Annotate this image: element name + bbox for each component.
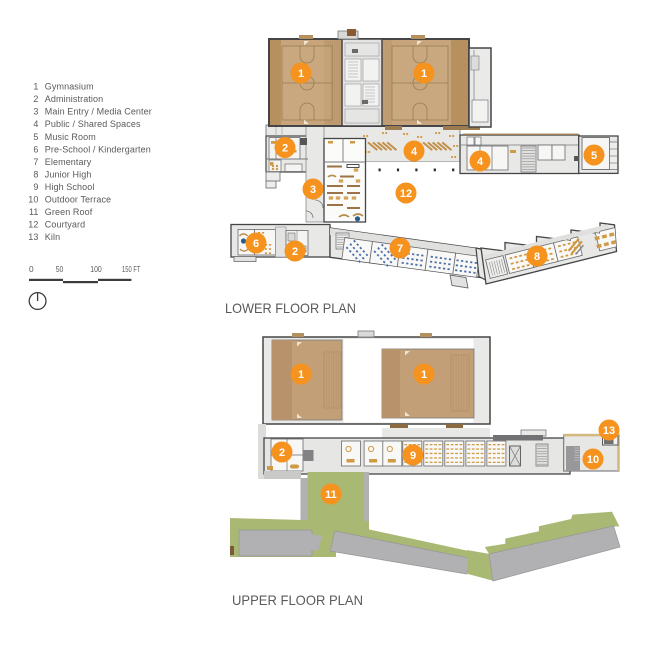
svg-text:3: 3 [310, 184, 316, 196]
svg-text:2: 2 [282, 142, 288, 154]
svg-text:11: 11 [29, 207, 39, 217]
svg-text:8: 8 [534, 251, 540, 263]
svg-text:1: 1 [33, 82, 38, 92]
svg-text:2: 2 [33, 94, 38, 104]
svg-text:4: 4 [33, 119, 38, 129]
svg-text:Public / Shared Spaces: Public / Shared Spaces [45, 119, 141, 129]
svg-text:High School: High School [45, 182, 95, 192]
svg-text:10: 10 [28, 195, 38, 205]
svg-text:4: 4 [411, 146, 418, 158]
svg-text:Green Roof: Green Roof [45, 207, 93, 217]
svg-text:6: 6 [253, 238, 259, 250]
svg-text:150 FT: 150 FT [122, 264, 141, 274]
svg-text:6: 6 [33, 144, 38, 154]
svg-text:5: 5 [591, 150, 597, 162]
svg-text:0: 0 [29, 264, 34, 274]
svg-text:Elementary: Elementary [45, 157, 92, 167]
svg-text:12: 12 [28, 220, 38, 230]
svg-text:100: 100 [90, 264, 102, 274]
svg-text:13: 13 [603, 425, 615, 437]
svg-text:10: 10 [587, 454, 599, 466]
svg-text:4: 4 [477, 156, 484, 168]
svg-text:1: 1 [421, 68, 427, 80]
svg-text:2: 2 [279, 447, 285, 459]
svg-text:12: 12 [400, 188, 412, 200]
svg-text:Music Room: Music Room [45, 132, 96, 142]
svg-text:11: 11 [325, 489, 337, 501]
svg-text:50: 50 [56, 264, 64, 274]
svg-text:5: 5 [33, 132, 38, 142]
svg-text:LOWER FLOOR PLAN: LOWER FLOOR PLAN [225, 300, 356, 316]
svg-text:UPPER FLOOR PLAN: UPPER FLOOR PLAN [232, 592, 363, 608]
svg-text:Outdoor Terrace: Outdoor Terrace [45, 195, 111, 205]
svg-text:Pre-School / Kindergarten: Pre-School / Kindergarten [45, 144, 151, 154]
svg-text:9: 9 [33, 182, 38, 192]
svg-text:Gymnasium: Gymnasium [45, 82, 94, 92]
svg-text:Administration: Administration [45, 94, 103, 104]
svg-text:8: 8 [33, 169, 38, 179]
svg-text:Main Entry / Media Center: Main Entry / Media Center [45, 107, 152, 117]
svg-text:Kiln: Kiln [45, 232, 60, 242]
svg-text:Junior High: Junior High [45, 169, 92, 179]
svg-text:3: 3 [33, 107, 38, 117]
svg-text:1: 1 [421, 369, 427, 381]
svg-text:2: 2 [292, 246, 298, 258]
svg-text:Courtyard: Courtyard [45, 220, 85, 230]
svg-text:7: 7 [33, 157, 38, 167]
svg-text:9: 9 [410, 450, 416, 462]
svg-text:1: 1 [298, 68, 304, 80]
svg-text:7: 7 [397, 243, 403, 255]
svg-text:13: 13 [28, 232, 38, 242]
svg-text:1: 1 [298, 369, 304, 381]
